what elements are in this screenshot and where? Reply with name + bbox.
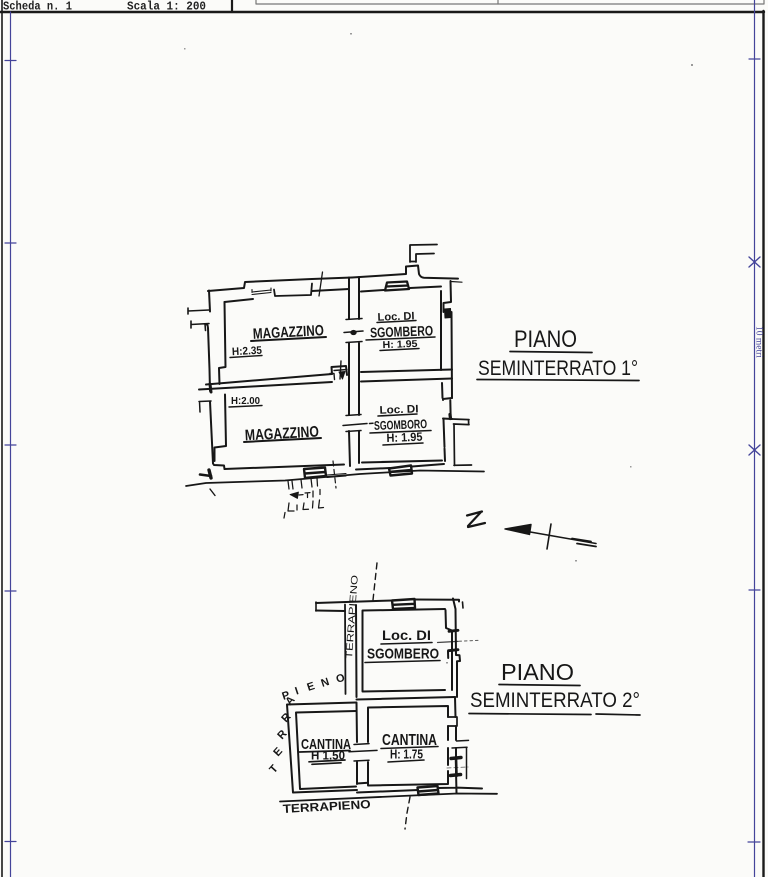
svg-text:T: T: [267, 763, 281, 776]
svg-text:Loc. DI: Loc. DI: [382, 628, 431, 643]
svg-text:SEMINTERRATO 2°: SEMINTERRATO 2°: [470, 688, 640, 712]
svg-text:N: N: [320, 676, 331, 690]
svg-text:I: I: [294, 685, 301, 697]
svg-text:TERRAPIENO: TERRAPIENO: [344, 575, 361, 660]
svg-text:SGOMBERO: SGOMBERO: [367, 646, 439, 663]
svg-text:P: P: [281, 689, 292, 703]
svg-text:R: R: [275, 728, 289, 742]
svg-text:E: E: [306, 680, 317, 694]
svg-text:10 metri: 10 metri: [754, 326, 764, 358]
svg-text:E: E: [271, 745, 285, 758]
svg-text:PIANO: PIANO: [514, 326, 577, 353]
svg-text:PIANO: PIANO: [501, 659, 574, 685]
svg-text:R: R: [279, 711, 293, 725]
svg-text:SEMINTERRATO 1°: SEMINTERRATO 1°: [478, 357, 638, 380]
